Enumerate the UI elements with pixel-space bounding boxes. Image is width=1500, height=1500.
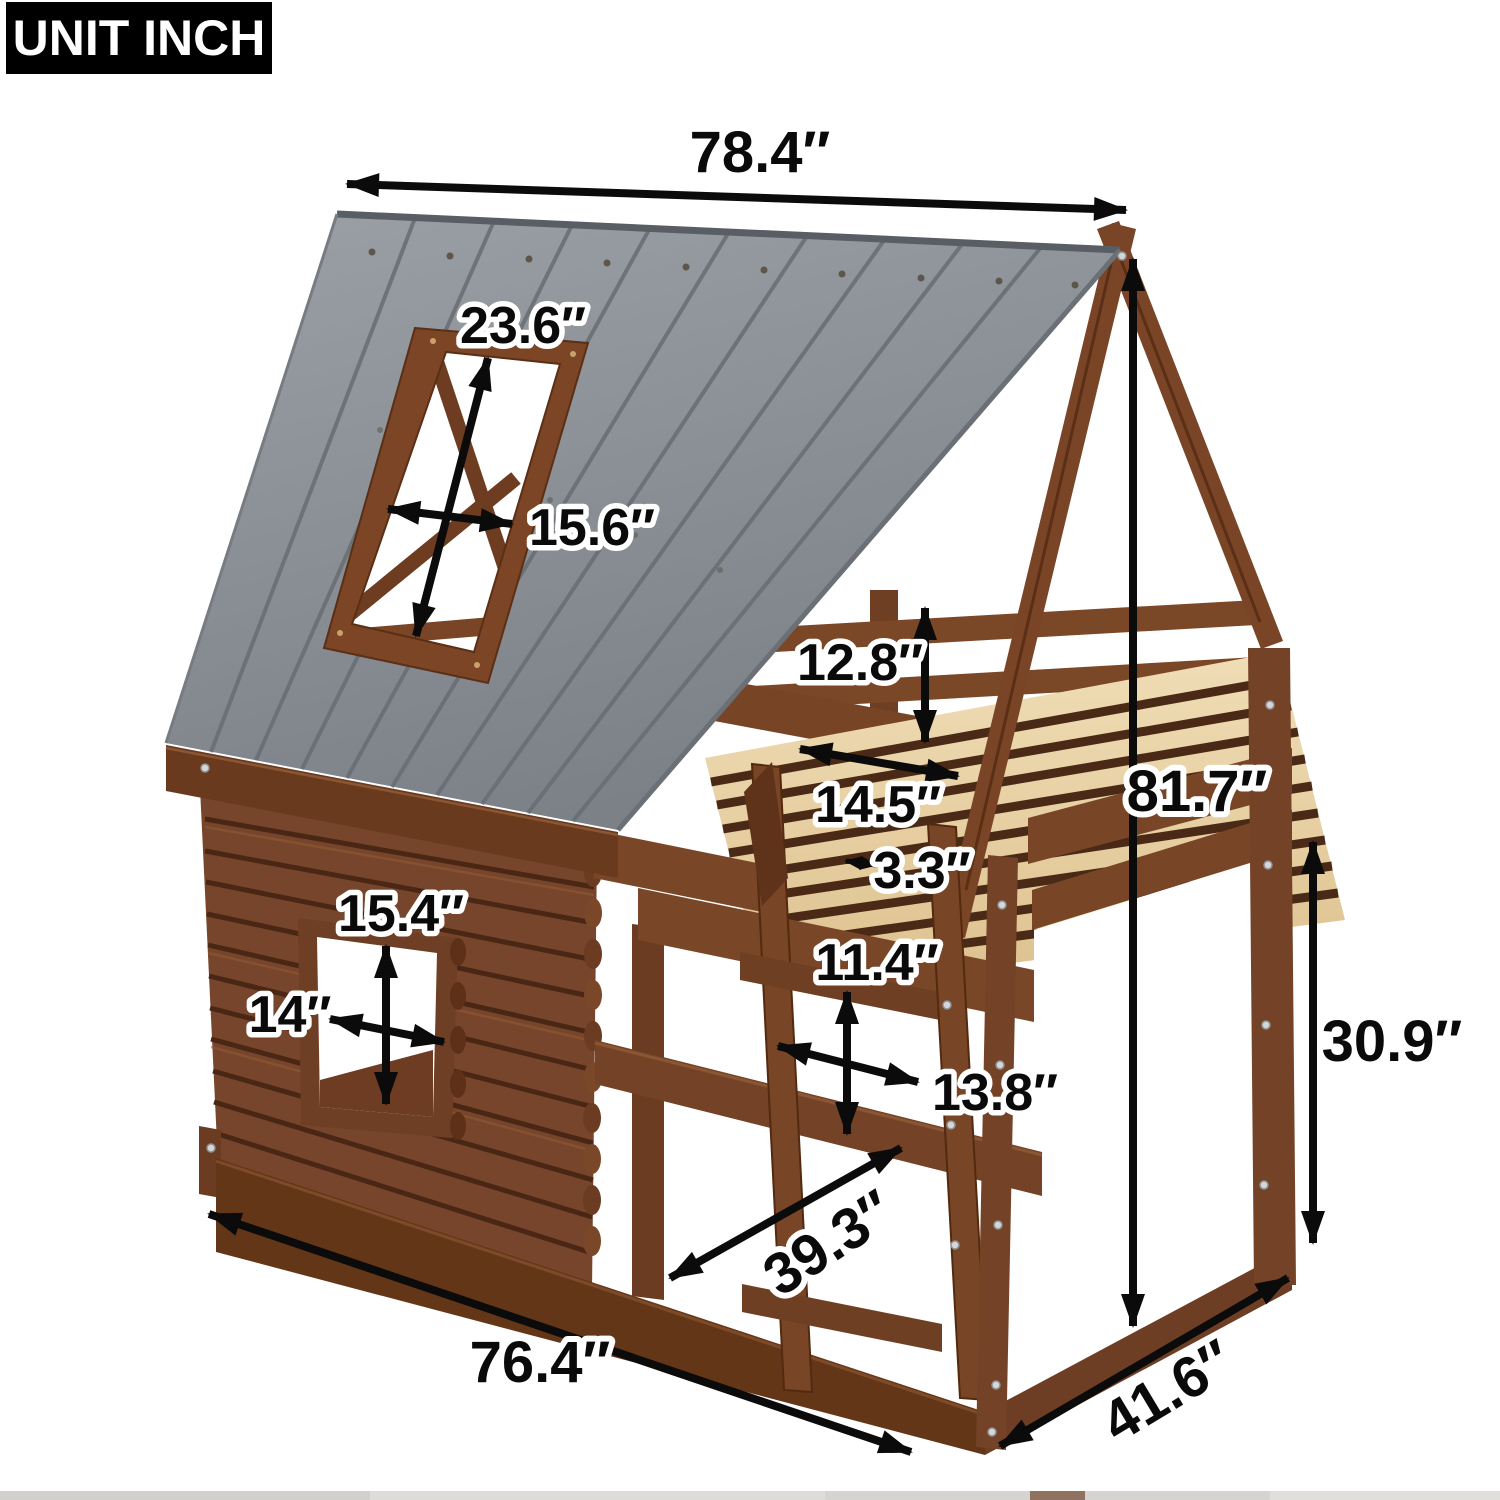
dim-label-total-height: 81.7″ (1127, 759, 1268, 824)
dim-label-guardrail-height: 12.8″ (797, 634, 923, 692)
dim-label-wall-window-height: 15.4″ (338, 885, 464, 943)
unit-badge: UNIT INCH (6, 2, 272, 74)
product-dimension-diagram: 78.4″ 23.6″ 15.6″ 12.8″ 14.5″ 3.3″ 81.7″ (0, 0, 1500, 1500)
dim-roof-width: 78.4″ (347, 120, 1126, 210)
dim-label-roof-width: 78.4″ (690, 120, 831, 185)
bed-illustration (166, 214, 1345, 1455)
dim-label-under-bed-clearance: 30.9″ (1322, 1009, 1463, 1074)
dim-label-headboard-width: 14.5″ (815, 776, 941, 834)
dim-label-ladder-rung-spacing: 11.4″ (815, 934, 938, 992)
dim-label-base-length: 76.4″ (470, 1330, 611, 1395)
dim-label-roof-window-width: 15.6″ (529, 499, 655, 557)
back-right-post (1248, 648, 1296, 1285)
dim-label-ladder-width: 13.8″ (932, 1064, 1058, 1122)
dim-label-wall-window-width: 14″ (249, 986, 332, 1044)
unit-badge-label: UNIT INCH (13, 10, 266, 66)
dim-label-roof-window-height: 23.6″ (460, 297, 586, 355)
back-left-post (632, 924, 664, 1300)
bunk-bed-dimension-figure: 78.4″ 23.6″ 15.6″ 12.8″ 14.5″ 3.3″ 81.7″ (0, 0, 1500, 1500)
dim-label-slat-gap: 3.3″ (873, 842, 970, 900)
bottom-image-strip (0, 1491, 1500, 1500)
